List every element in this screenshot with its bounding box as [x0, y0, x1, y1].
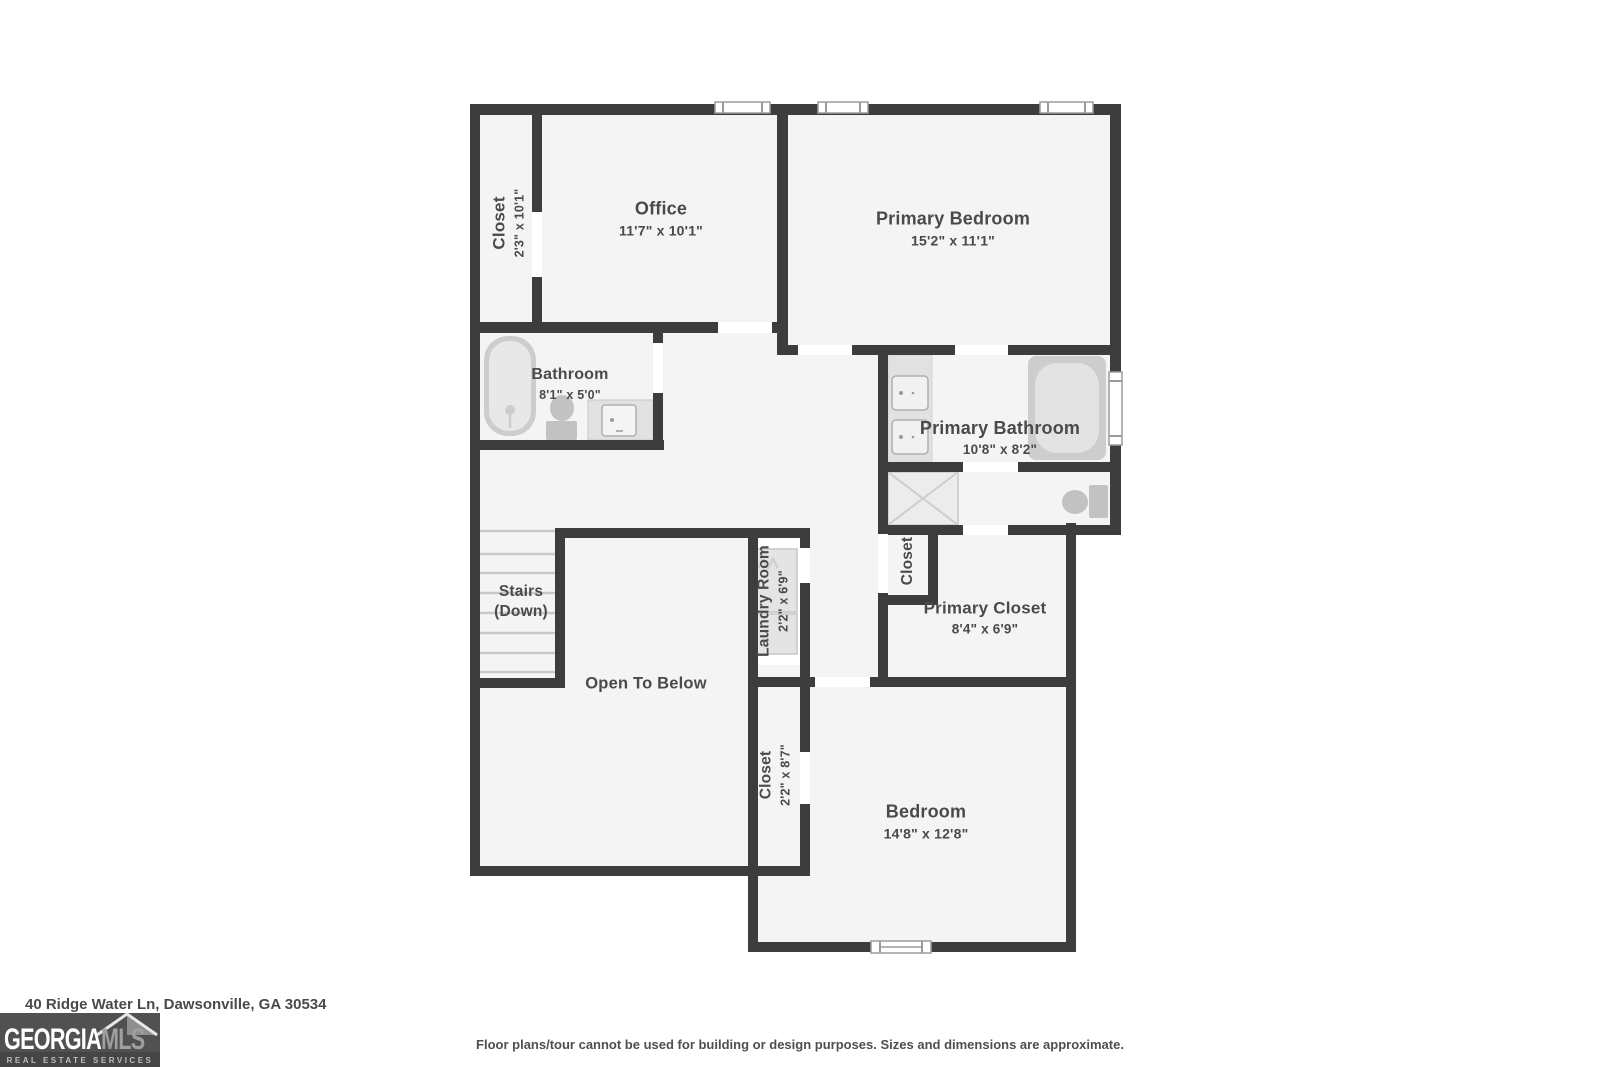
room-dimensions: 11'7" x 10'1" [619, 222, 703, 240]
room-label-stairs: Stairs (Down) [494, 582, 548, 622]
room-dimensions: 2'2" x 8'7" [777, 744, 793, 806]
room-name: Bedroom [884, 801, 969, 824]
room-label-primary-bedroom: Primary Bedroom 15'2" x 11'1" [876, 208, 1030, 251]
room-name: Office [619, 198, 703, 221]
room-label-primary-bathroom: Primary Bathroom 10'8" x 8'2" [920, 417, 1080, 459]
floor-plan-drawing [0, 0, 1600, 1067]
room-name: Closet [898, 537, 918, 586]
room-dimensions: 14'8" x 12'8" [884, 825, 969, 843]
room-label-primary-closet: Primary Closet 8'4" x 6'9" [924, 598, 1047, 639]
room-name: Open To Below [585, 673, 706, 694]
logo-tagline: REAL ESTATE SERVICES [0, 1056, 160, 1065]
room-label-laundry-room: Laundry Room 2'2" x 6'9" [754, 545, 791, 657]
window-primary-bedroom-right [1040, 102, 1093, 113]
room-dimensions: 8'4" x 6'9" [924, 621, 1047, 639]
room-dimensions: 15'2" x 11'1" [876, 232, 1030, 250]
hall-vanity-sink [588, 400, 653, 440]
room-dimensions: 2'2" x 6'9" [775, 545, 791, 657]
window-office [715, 102, 770, 113]
room-label-open-to-below: Open To Below [585, 673, 706, 694]
room-dimensions: 8'1" x 5'0" [531, 387, 608, 403]
room-label-hall-closet: Closet [898, 537, 918, 586]
room-sublabel: (Down) [494, 602, 548, 622]
room-name: Primary Bedroom [876, 208, 1030, 231]
window-primary-bathroom [1109, 372, 1122, 445]
room-dimensions: 2'3" x 10'1" [511, 189, 527, 258]
floor-plan-page: Closet 2'3" x 10'1" Office 11'7" x 10'1"… [0, 0, 1600, 1067]
room-name: Closet [488, 189, 510, 258]
primary-shower [888, 472, 958, 525]
window-bedroom [871, 941, 931, 953]
room-name: Stairs [494, 582, 548, 602]
room-label-office: Office 11'7" x 10'1" [619, 198, 703, 241]
window-primary-bedroom-left [818, 102, 868, 113]
room-label-bedroom: Bedroom 14'8" x 12'8" [884, 801, 969, 844]
room-name: Laundry Room [754, 545, 774, 657]
room-name: Primary Closet [924, 598, 1047, 620]
room-name: Closet [756, 744, 776, 806]
room-name: Bathroom [531, 365, 608, 386]
room-label-bathroom: Bathroom 8'1" x 5'0" [531, 365, 608, 403]
georgia-mls-logo: GEORGIAMLS REAL ESTATE SERVICES [0, 1013, 160, 1067]
room-name: Primary Bathroom [920, 417, 1080, 440]
hall-bathtub [484, 336, 536, 436]
room-dimensions: 10'8" x 8'2" [920, 441, 1080, 459]
room-label-closet-top-left: Closet 2'3" x 10'1" [488, 189, 527, 258]
property-address: 40 Ridge Water Ln, Dawsonville, GA 30534 [25, 996, 327, 1013]
room-label-bedroom-closet: Closet 2'2" x 8'7" [756, 744, 793, 806]
disclaimer-text: Floor plans/tour cannot be used for buil… [0, 1037, 1600, 1052]
